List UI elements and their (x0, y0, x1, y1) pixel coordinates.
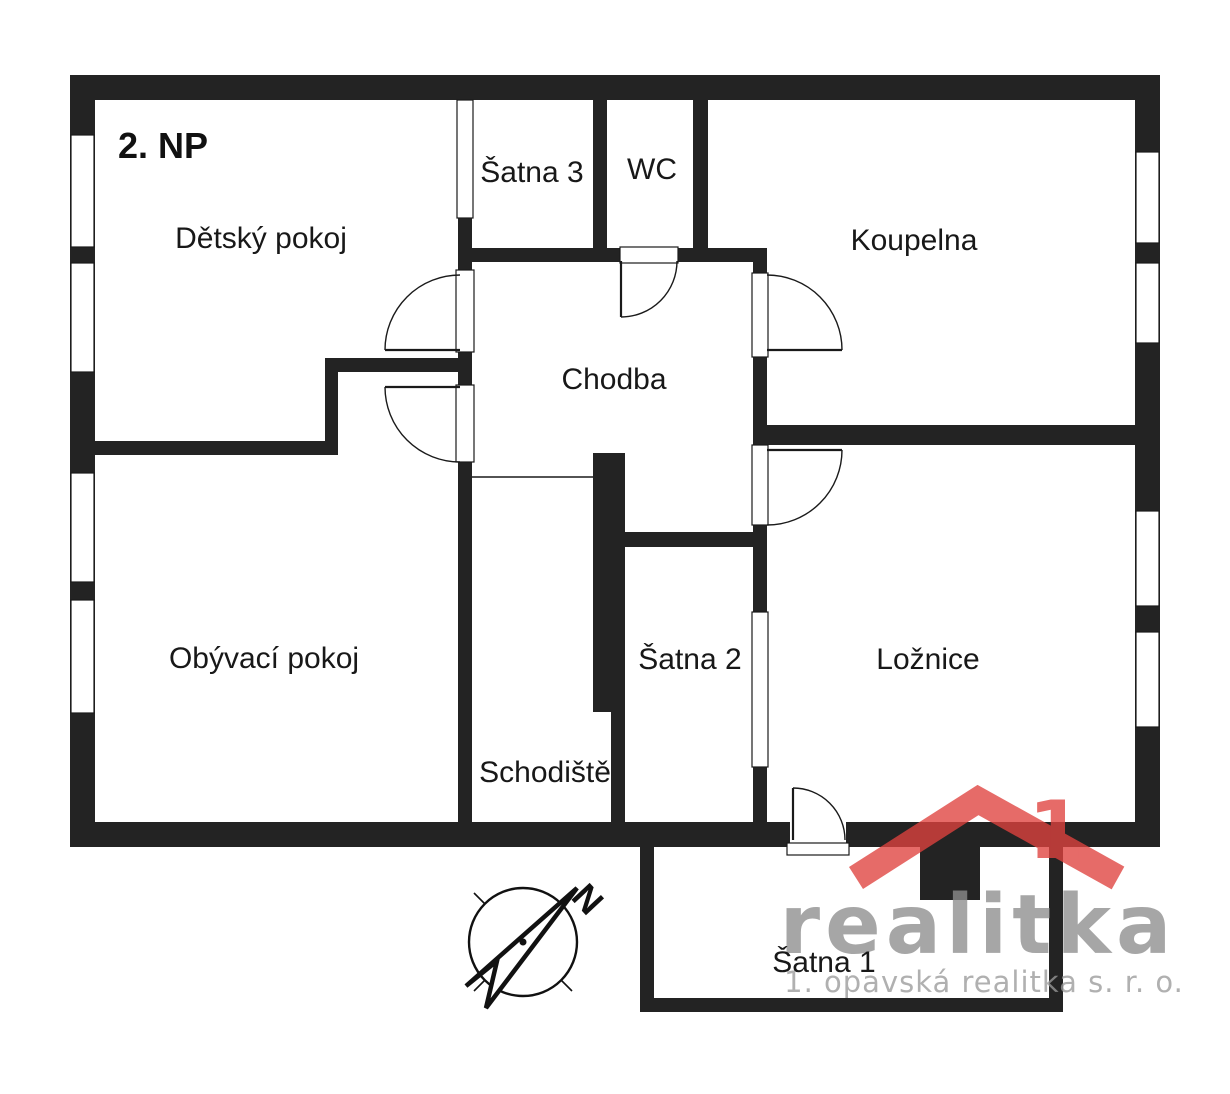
door-koupelna (767, 275, 842, 350)
wall-satna1-left (640, 847, 654, 1012)
compass-rose: N (466, 876, 612, 1008)
room-label-satna3: Šatna 3 (480, 155, 583, 189)
doorgap-koupelna (752, 273, 768, 357)
opening-satna2-loznice (752, 612, 768, 767)
wall-chodba-top (458, 248, 767, 262)
wall-koupelna-loznice (753, 425, 1140, 445)
room-label-schodiste: Schodiště (479, 756, 611, 789)
room-label-satna1: Šatna 1 (772, 945, 875, 979)
doorgap-wc (620, 247, 678, 263)
wall-nook-top (325, 358, 472, 372)
doorgap-detsky (456, 270, 474, 352)
door-obyvaci-pokoj (385, 387, 460, 462)
doorgap-loznice (752, 445, 768, 525)
wall-schodiste-satna2 (611, 712, 625, 822)
window-obyvaci-left-1 (71, 473, 94, 582)
wall-detsky-bottom (70, 441, 338, 455)
wall-satna2-top (625, 532, 753, 547)
wall-exterior-top (70, 75, 1160, 100)
wall-exterior-bottom (70, 822, 1160, 847)
watermark-numeral: 1 (1028, 784, 1084, 877)
window-detsky-left-2 (71, 263, 94, 372)
wall-satna1-bottom (640, 998, 1063, 1012)
compass-center-dot (520, 939, 527, 946)
wall-satna3-wc (593, 100, 607, 248)
room-label-wc: WC (627, 153, 677, 186)
floor-plan-canvas: N 1 realitka 1. opavská realitka s. r. o… (0, 0, 1230, 1094)
wall-stair-bar (593, 453, 625, 712)
door-wc (621, 261, 677, 317)
door-detsky-pokoj (385, 275, 460, 350)
door-loznice (767, 450, 842, 525)
walls (70, 75, 1160, 1012)
room-label-detsky-pokoj: Dětský pokoj (175, 222, 347, 255)
doorgap-obyvaci (456, 385, 474, 462)
room-label-satna2: Šatna 2 (638, 642, 741, 676)
window-loznice-right-1 (1136, 511, 1159, 606)
window-detsky-left-1 (71, 135, 94, 247)
threshold-satna1 (787, 843, 849, 855)
window-koupelna-right-2 (1136, 263, 1159, 343)
opening-detsky-satna3 (457, 100, 473, 218)
window-loznice-right-2 (1136, 632, 1159, 727)
room-label-obyvaci-pokoj: Obývací pokoj (169, 642, 359, 675)
window-koupelna-right-1 (1136, 152, 1159, 243)
room-label-loznice: Ložnice (876, 643, 979, 676)
wall-step-vertical (325, 358, 338, 455)
floor-plan-page: N 1 realitka 1. opavská realitka s. r. o… (0, 0, 1230, 1094)
floor-level-label: 2. NP (118, 125, 208, 166)
room-label-koupelna: Koupelna (851, 224, 978, 257)
window-obyvaci-left-2 (71, 600, 94, 713)
wall-wc-koupelna (693, 100, 708, 248)
room-label-chodba: Chodba (561, 363, 666, 396)
